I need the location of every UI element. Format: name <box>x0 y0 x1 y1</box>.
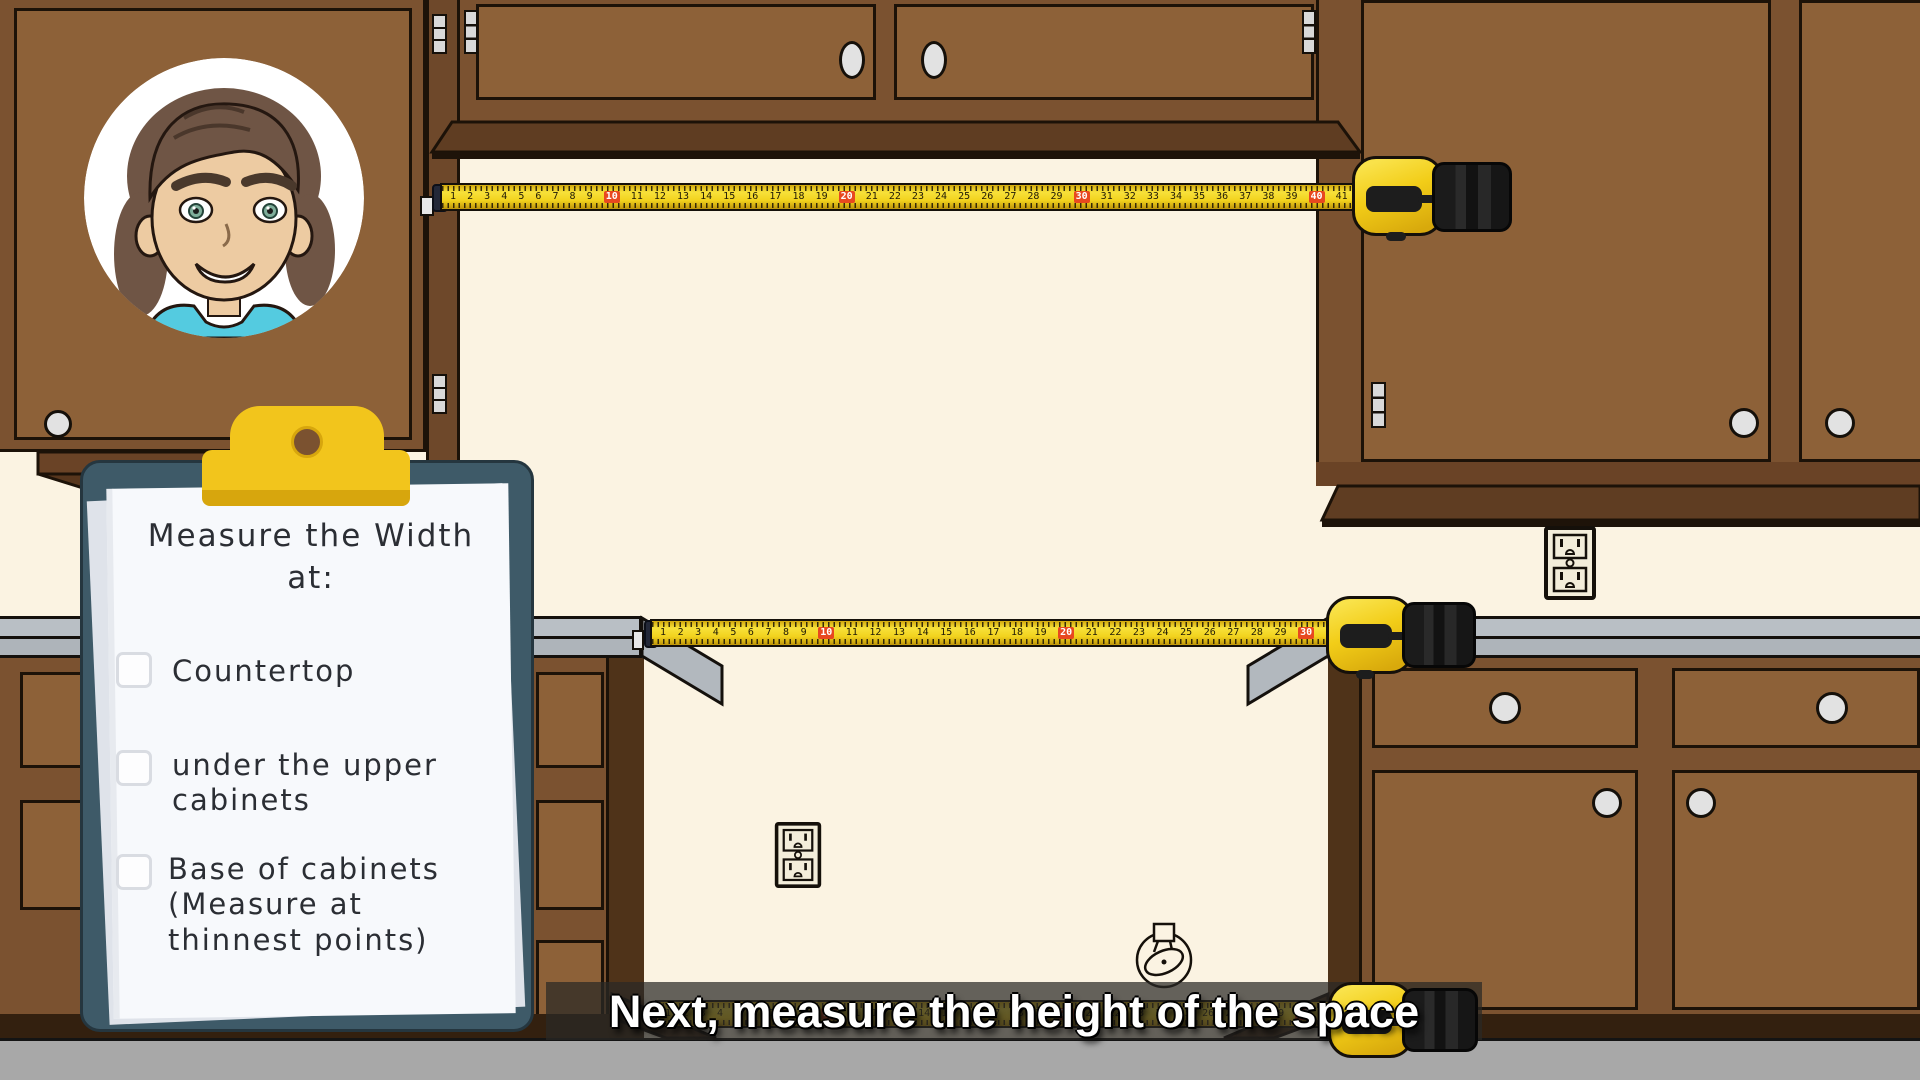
tape-number: 23 <box>912 192 924 202</box>
tape-number: 32 <box>1124 192 1136 202</box>
tape-number: 10 <box>604 191 620 203</box>
tape-number: 13 <box>677 192 689 202</box>
tape-number: 8 <box>783 628 789 638</box>
tape-number: 8 <box>570 192 576 202</box>
tape-number: 35 <box>1193 192 1205 202</box>
tape-number: 11 <box>631 192 643 202</box>
tape-number: 9 <box>801 628 807 638</box>
tape-number: 9 <box>587 192 593 202</box>
tape-number: 21 <box>1086 628 1098 638</box>
tape-number: 4 <box>713 628 719 638</box>
tape-number: 28 <box>1027 192 1039 202</box>
tape-number: 13 <box>893 628 905 638</box>
tape-number: 20 <box>1058 627 1074 639</box>
tape-number: 24 <box>1157 628 1169 638</box>
tape-number: 7 <box>765 628 771 638</box>
tape-number: 29 <box>1050 192 1062 202</box>
tape-number: 18 <box>1011 628 1023 638</box>
checklist-title-line2: at: <box>120 560 502 598</box>
tape-number: 38 <box>1262 192 1274 202</box>
power-outlet-icon <box>1544 526 1596 600</box>
tape-number: 31 <box>1101 192 1113 202</box>
clipboard-clip-hole <box>291 426 323 458</box>
tape-number: 14 <box>700 192 712 202</box>
tape-number: 30 <box>1298 627 1314 639</box>
tape-measure-belt-clip <box>1366 186 1422 212</box>
tape-number: 39 <box>1285 192 1297 202</box>
tape-number: 7 <box>552 192 558 202</box>
tape-number: 27 <box>1004 192 1016 202</box>
tape-number: 22 <box>889 192 901 202</box>
tape-number: 2 <box>678 628 684 638</box>
tape-number: 29 <box>1274 628 1286 638</box>
tape-number: 11 <box>846 628 858 638</box>
tape-number: 18 <box>792 192 804 202</box>
tape-number: 26 <box>981 192 993 202</box>
tape-measure-case <box>1402 602 1476 668</box>
tape-number: 33 <box>1147 192 1159 202</box>
tape-number: 10 <box>818 627 834 639</box>
tape-hook-tab <box>632 630 644 650</box>
caption-text: Next, measure the height of the space <box>516 986 1512 1038</box>
tape-number: 26 <box>1204 628 1216 638</box>
tape-number: 2 <box>467 192 473 202</box>
tape-number: 23 <box>1133 628 1145 638</box>
tape-number: 1 <box>660 628 666 638</box>
tape-measure-tab <box>1386 232 1406 241</box>
tape-number: 1 <box>450 192 456 202</box>
tape-measure-blade-middle: 1234567891011121314151617181920212223242… <box>650 619 1348 647</box>
checklist-item-label: Countertop <box>172 654 502 689</box>
tape-number: 15 <box>723 192 735 202</box>
tape-measure-belt-clip <box>1340 624 1392 648</box>
tape-measure-tab <box>1356 670 1374 679</box>
presenter-avatar <box>84 58 364 338</box>
tape-number: 24 <box>935 192 947 202</box>
tape-number: 12 <box>654 192 666 202</box>
checklist-item-label: under the upper cabinets <box>172 748 492 819</box>
tape-number: 37 <box>1239 192 1251 202</box>
checkbox-under-upper-cabinets[interactable] <box>116 750 152 786</box>
tape-number: 19 <box>1035 628 1047 638</box>
tape-number: 40 <box>1309 191 1325 203</box>
power-outlet-icon <box>774 822 822 888</box>
tape-number: 34 <box>1170 192 1182 202</box>
kitchen-scene: Measure the Width at: Countertop under t… <box>0 0 1920 1080</box>
tape-number: 6 <box>535 192 541 202</box>
tape-number: 16 <box>746 192 758 202</box>
tape-number: 3 <box>695 628 701 638</box>
tape-number: 41 <box>1336 192 1348 202</box>
tape-measure-blade-top: 1234567891011121314151617181920212223242… <box>440 183 1358 211</box>
tape-number: 25 <box>958 192 970 202</box>
tape-number: 22 <box>1109 628 1121 638</box>
tape-number: 5 <box>518 192 524 202</box>
tape-number: 17 <box>987 628 999 638</box>
tape-number: 14 <box>917 628 929 638</box>
tape-number: 17 <box>769 192 781 202</box>
checkbox-base-of-cabinets[interactable] <box>116 854 152 890</box>
dish-sketch-icon <box>1128 918 1200 990</box>
tape-number: 27 <box>1227 628 1239 638</box>
tape-number: 19 <box>816 192 828 202</box>
tape-number: 30 <box>1074 191 1090 203</box>
tape-number: 15 <box>940 628 952 638</box>
tape-number: 21 <box>866 192 878 202</box>
tape-number: 4 <box>501 192 507 202</box>
checklist-title-line1: Measure the Width <box>120 518 502 556</box>
checkbox-countertop[interactable] <box>116 652 152 688</box>
tape-number: 16 <box>964 628 976 638</box>
tape-number: 25 <box>1180 628 1192 638</box>
clipboard-clip-band <box>202 490 410 506</box>
tape-number: 6 <box>748 628 754 638</box>
tape-measure-case <box>1432 162 1512 232</box>
tape-number: 5 <box>730 628 736 638</box>
tape-number: 36 <box>1216 192 1228 202</box>
tape-number: 3 <box>484 192 490 202</box>
tape-number: 12 <box>869 628 881 638</box>
tape-number: 20 <box>839 191 855 203</box>
checklist-item-label: Base of cabinets (Measure at thinnest po… <box>168 852 488 958</box>
tape-number: 28 <box>1251 628 1263 638</box>
